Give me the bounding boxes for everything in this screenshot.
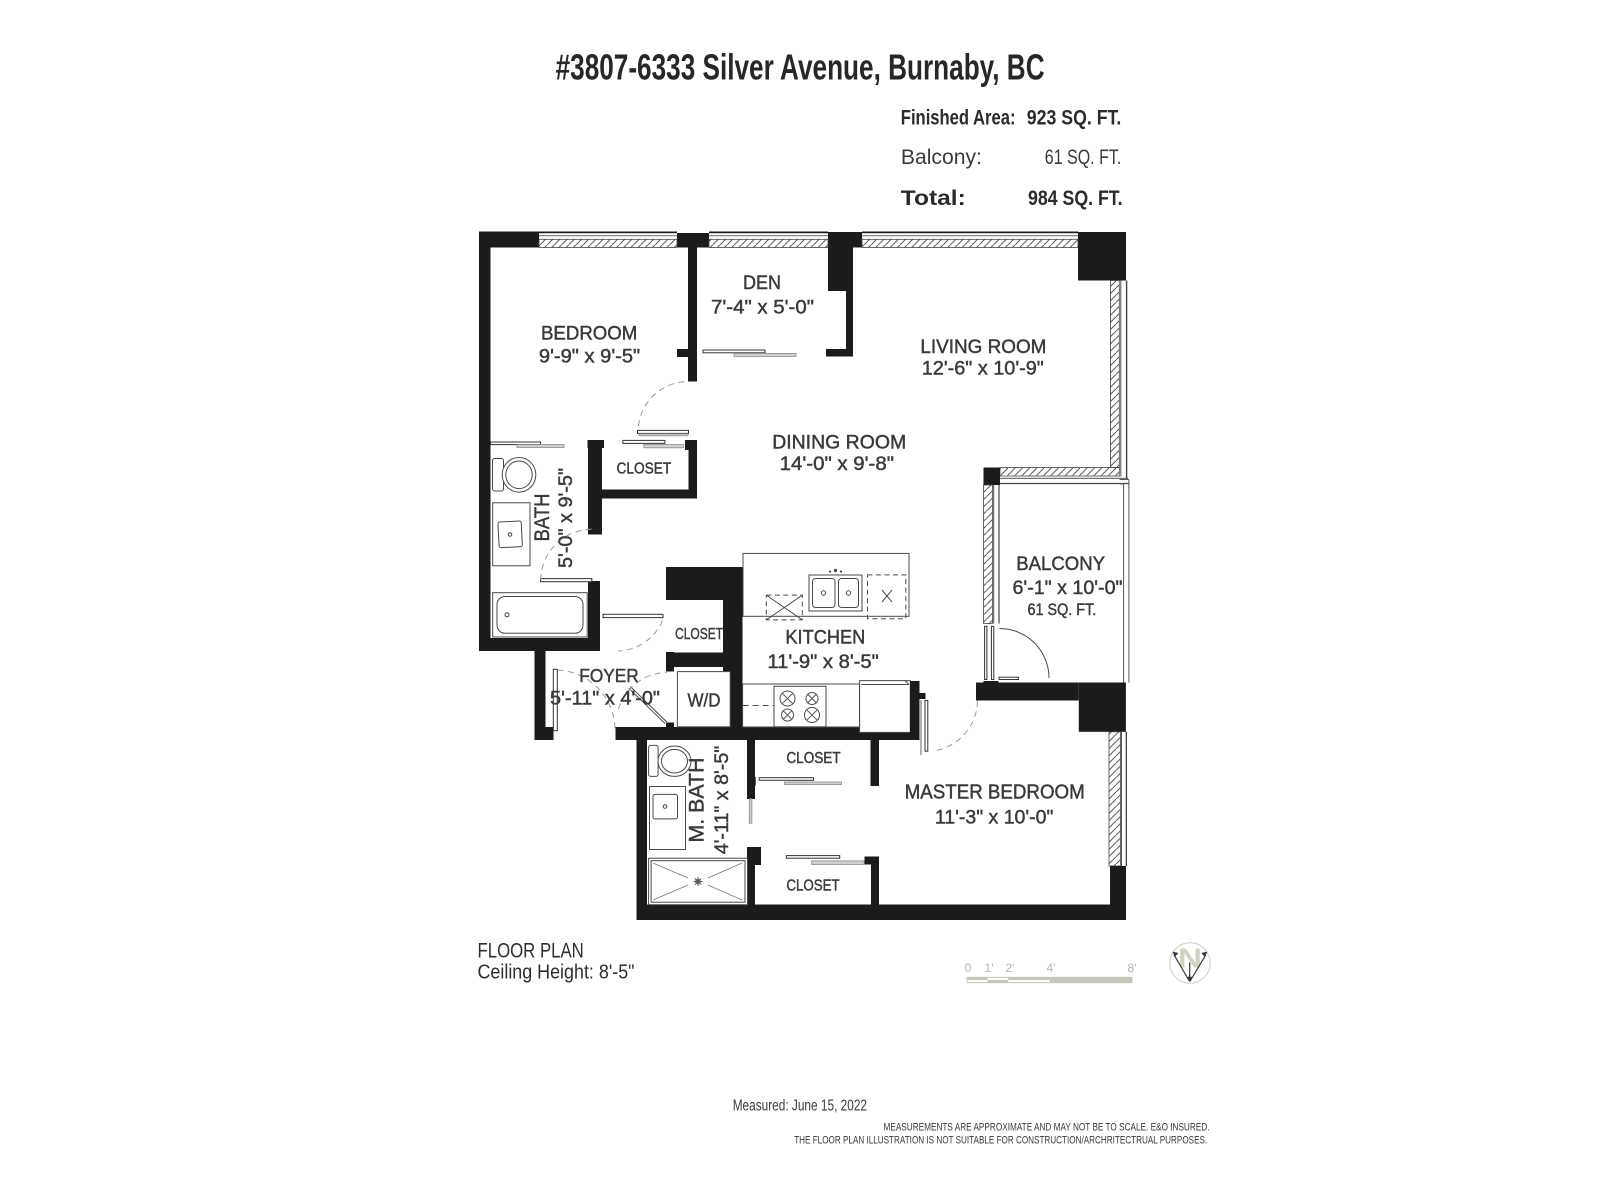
svg-text:5'-11" x 4'-0": 5'-11" x 4'-0"	[550, 689, 660, 710]
svg-text:2': 2'	[1006, 961, 1015, 975]
svg-text:11'-9" x 8'-5": 11'-9" x 8'-5"	[767, 652, 878, 673]
svg-text:0: 0	[965, 961, 972, 975]
svg-text:KITCHEN: KITCHEN	[785, 627, 865, 649]
svg-text:5'-0" x 9'-5": 5'-0" x 9'-5"	[555, 468, 577, 568]
svg-text:BEDROOM: BEDROOM	[541, 323, 637, 345]
svg-text:FLOOR PLAN: FLOOR PLAN	[478, 940, 584, 963]
svg-text:7'-4" x 5'-0": 7'-4" x 5'-0"	[711, 298, 814, 319]
svg-text:6'-1" x 10'-0": 6'-1" x 10'-0"	[1013, 578, 1123, 599]
svg-text:14'-0" x 9'-8": 14'-0" x 9'-8"	[780, 454, 894, 475]
svg-text:11'-3" x 10'-0": 11'-3" x 10'-0"	[935, 807, 1054, 829]
svg-text:LIVING ROOM: LIVING ROOM	[920, 336, 1046, 358]
svg-text:DINING ROOM: DINING ROOM	[772, 431, 906, 453]
svg-text:CLOSET: CLOSET	[617, 461, 672, 478]
svg-text:CLOSET: CLOSET	[786, 750, 841, 767]
svg-text:CLOSET: CLOSET	[786, 878, 840, 895]
svg-text:Ceiling Height: 8'-5": Ceiling Height: 8'-5"	[478, 962, 635, 984]
svg-text:W/D: W/D	[688, 691, 721, 711]
svg-text:Balcony:: Balcony:	[901, 145, 982, 169]
svg-text:4'-11" x 8'-5": 4'-11" x 8'-5"	[711, 746, 733, 855]
svg-text:Measured: June 15, 2022: Measured: June 15, 2022	[733, 1098, 867, 1115]
svg-text:BALCONY: BALCONY	[1016, 553, 1105, 575]
svg-text:#3807-6333 Silver Avenue, Burn: #3807-6333 Silver Avenue, Burnaby, BC	[556, 47, 1045, 88]
svg-text:BATH: BATH	[531, 494, 554, 542]
svg-text:61 SQ. FT.: 61 SQ. FT.	[1028, 600, 1097, 619]
svg-text:Total:: Total:	[901, 186, 966, 210]
svg-text:8': 8'	[1128, 961, 1137, 975]
svg-text:MEASUREMENTS ARE APPROXIMATE A: MEASUREMENTS ARE APPROXIMATE AND MAY NOT…	[884, 1122, 1210, 1134]
svg-text:FOYER: FOYER	[579, 665, 638, 686]
svg-text:THE FLOOR PLAN ILLUSTRATION IS: THE FLOOR PLAN ILLUSTRATION IS NOT SUITA…	[794, 1134, 1207, 1146]
svg-text:9'-9" x 9'-5": 9'-9" x 9'-5"	[539, 346, 640, 367]
svg-text:1': 1'	[985, 961, 994, 975]
svg-text:61 SQ. FT.: 61 SQ. FT.	[1045, 145, 1122, 169]
svg-text:923 SQ. FT.: 923 SQ. FT.	[1027, 106, 1122, 130]
svg-text:984 SQ. FT.: 984 SQ. FT.	[1028, 186, 1123, 210]
svg-text:CLOSET: CLOSET	[675, 626, 723, 643]
svg-text:12'-6" x 10'-9": 12'-6" x 10'-9"	[922, 358, 1044, 379]
svg-text:MASTER BEDROOM: MASTER BEDROOM	[905, 781, 1085, 803]
svg-text:4': 4'	[1047, 961, 1056, 975]
svg-text:M. BATH: M. BATH	[685, 758, 708, 843]
svg-text:Finished Area:: Finished Area:	[901, 106, 1016, 130]
svg-text:DEN: DEN	[743, 272, 781, 294]
